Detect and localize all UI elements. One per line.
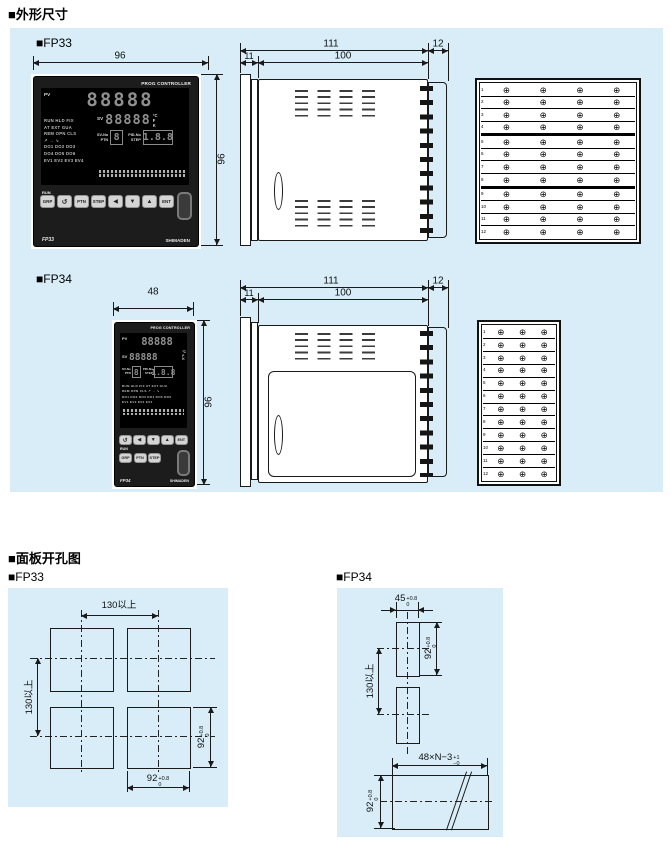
- terminal-screw-icon: ⊕: [490, 328, 512, 337]
- terminal-number: 7: [483, 407, 490, 412]
- terminal-number: 9: [483, 433, 490, 438]
- terminal-screw-icon: ⊕: [598, 190, 635, 199]
- terminal-screw-icon: ⊕: [512, 457, 534, 466]
- terminal-screw-icon: ⊕: [525, 111, 562, 120]
- terminal-row: 12⊕⊕⊕⊕: [481, 226, 635, 238]
- terminal-screw-icon: ⊕: [598, 98, 635, 107]
- tol-minus: 0: [374, 790, 380, 801]
- dim-line: [113, 308, 193, 309]
- terminal-screw-icon: ⊕: [562, 163, 599, 172]
- status-row: DO4 DO5 DO6: [44, 151, 96, 158]
- terminal-screw-icon: ⊕: [488, 203, 525, 212]
- ext-line: [448, 43, 449, 81]
- terminal-screw-icon: ⊕: [525, 190, 562, 199]
- status-row: RUN HLD FIX: [44, 118, 96, 125]
- dimensions-panel: ■FP33 96 96 PROG CONTROLLER PV 88888 RUN…: [10, 28, 663, 492]
- terminal-screw-icon: ⊕: [598, 123, 635, 132]
- status-row: AT EXT GUA: [44, 125, 96, 132]
- terminal-row: 4⊕⊕⊕: [483, 365, 555, 378]
- pv-label: PV: [122, 336, 127, 341]
- terminal-screw-icon: ⊕: [533, 328, 555, 337]
- cutout-square: [127, 628, 191, 692]
- terminal-screw-icon: ⊕: [598, 203, 635, 212]
- dim-value: 92: [196, 738, 207, 749]
- dim-line: [258, 299, 428, 300]
- fp33-h-pitch-dim: 130以上: [102, 597, 137, 611]
- maker-text: SHIMADEN: [170, 479, 189, 483]
- maker-text: SHIMADEN: [165, 238, 190, 243]
- fp34-cutout-width-dim: 45+0.80: [395, 588, 417, 608]
- tolerance-dim: 45+0.80: [395, 593, 417, 604]
- terminal-cover: [428, 82, 447, 238]
- terminal-screw-icon: ⊕: [562, 98, 599, 107]
- fp33-v-pitch-dim: 130以上: [21, 680, 35, 715]
- terminal-screw-icon: ⊕: [525, 215, 562, 224]
- terminal-screw-icon: ⊕: [490, 341, 512, 350]
- ext-line: [193, 707, 217, 708]
- ext-line: [487, 758, 488, 775]
- down-arrow-button-icon: ▼: [147, 435, 160, 445]
- fp33-model-text: FP33: [42, 237, 54, 243]
- ext-line: [396, 602, 397, 618]
- terminal-screw-icon: ⊕: [533, 457, 555, 466]
- flange-step: [251, 79, 258, 241]
- cutout-square: [50, 707, 114, 769]
- ptn-digit-display: 8: [132, 366, 141, 378]
- fp33-bezel: PROG CONTROLLER PV 88888 RUN HLD FIX AT …: [33, 76, 199, 247]
- fp34-front-height-dim: 96: [204, 396, 215, 407]
- case-slot: [274, 172, 283, 210]
- ext-line: [392, 758, 393, 775]
- fp33-front-height-dim: 96: [217, 153, 228, 164]
- terminal-screw-icon: ⊕: [512, 366, 534, 375]
- terminal-screw-icon: ⊕: [533, 405, 555, 414]
- up-arrow-button-icon: ▲: [142, 195, 157, 208]
- dim-line: [378, 648, 379, 714]
- dim-line: [428, 287, 448, 288]
- tolerance-dim: 92+0.80: [423, 637, 434, 659]
- terminal-screw-icon: ⊕: [533, 444, 555, 453]
- grp-button: GRP: [119, 453, 132, 463]
- terminal-screw-icon: ⊕: [525, 98, 562, 107]
- terminal-row: 9⊕⊕⊕: [483, 429, 555, 442]
- terminal-screw-icon: ⊕: [512, 405, 534, 414]
- unit-k: K: [182, 358, 186, 362]
- cutout-square: [50, 628, 114, 692]
- step-digit-display: 1.8.8: [154, 366, 173, 378]
- ext-line: [428, 280, 429, 326]
- loop-button-icon: ↺: [57, 195, 72, 208]
- terminal-screw-icon: ⊕: [598, 228, 635, 237]
- terminal-row: 11⊕⊕⊕⊕: [481, 214, 635, 227]
- sv-digits: 88888: [129, 353, 158, 363]
- cutout-rect: [396, 622, 420, 677]
- tool-port: [177, 450, 190, 476]
- terminal-number: 3: [483, 356, 490, 361]
- pv-digits: 88888: [55, 91, 185, 110]
- terminal-screw-icon: ⊕: [598, 86, 635, 95]
- ptn-label: PTN: [125, 371, 131, 375]
- terminal-screw-icon: ⊕: [490, 392, 512, 401]
- terminal-screw-icon: ⊕: [488, 163, 525, 172]
- terminal-row: 6⊕⊕⊕⊕: [481, 149, 635, 162]
- vent-slots-bottom: [295, 200, 375, 231]
- terminal-screw-icon: ⊕: [533, 366, 555, 375]
- terminal-screw-icon: ⊕: [512, 341, 534, 350]
- terminal-screw-icon: ⊕: [488, 123, 525, 132]
- terminal-screw-icon: ⊕: [598, 215, 635, 224]
- terminal-screw-icon: ⊕: [533, 418, 555, 427]
- status-column: RUN HLD FIX AT EXT GUA REM OPN CLS ↗ → ↘…: [122, 384, 186, 406]
- grp-button: GRP: [40, 195, 55, 208]
- terminal-number: 9: [481, 192, 488, 197]
- tolerance-dim: 92+0.80: [365, 790, 376, 812]
- dim-line: [258, 62, 428, 63]
- terminal-row: 5⊕⊕⊕⊕: [481, 136, 635, 149]
- terminal-screw-icon: ⊕: [598, 163, 635, 172]
- sv-row: SV 88888 °C F K: [97, 114, 187, 128]
- ext-line: [420, 622, 442, 623]
- terminal-number: 1: [481, 88, 488, 93]
- terminal-screw-icon: ⊕: [512, 444, 534, 453]
- terminal-row: 6⊕⊕⊕: [483, 391, 555, 404]
- terminal-screw-icon: ⊕: [562, 215, 599, 224]
- case-slot: [274, 415, 283, 455]
- ext-line: [240, 280, 241, 316]
- terminal-row: 10⊕⊕⊕⊕: [481, 201, 635, 214]
- fp34-model-text: FP34: [120, 478, 131, 483]
- status-row: DO1 DO2 DO3: [44, 144, 96, 151]
- status-row: ↗ → ↘: [44, 138, 96, 145]
- terminal-screw-icon: ⊕: [488, 150, 525, 159]
- terminal-screw-icon: ⊕: [512, 379, 534, 388]
- ext-line: [420, 675, 442, 676]
- terminal-number: 2: [483, 343, 490, 348]
- terminal-screw-icon: ⊕: [525, 228, 562, 237]
- tool-port: [177, 192, 192, 220]
- fp34-cutout-height-dim: 92+0.80: [418, 637, 438, 659]
- step-digit-display: 1.8.8: [143, 130, 173, 145]
- fp34-side-view: 111 12 11 100: [232, 275, 454, 490]
- terminal-row: 1⊕⊕⊕⊕: [481, 84, 635, 97]
- fp33-front-view: PROG CONTROLLER PV 88888 RUN HLD FIX AT …: [31, 74, 201, 249]
- terminal-number: 2: [481, 100, 488, 105]
- terminal-screw-icon: ⊕: [525, 163, 562, 172]
- terminal-screw-icon: ⊕: [490, 379, 512, 388]
- terminal-screw-icon: ⊕: [488, 176, 525, 185]
- ext-line: [195, 320, 210, 321]
- fp34-cutout-panel: 45+0.80 92+0.80 130以上 48×N−3+1−0 92+0.80: [337, 588, 503, 837]
- cutout-square: [127, 707, 191, 769]
- ext-line: [33, 56, 34, 70]
- terminal-screw-icon: ⊕: [512, 328, 534, 337]
- terminal-row: 8⊕⊕⊕⊕: [481, 174, 635, 189]
- fp33-side-depth-dim: 100: [335, 51, 352, 62]
- pv-label: PV: [44, 92, 50, 97]
- ext-line: [428, 43, 429, 79]
- brand-text: PROG CONTROLLER: [141, 81, 191, 86]
- terminal-row: 1⊕⊕⊕: [483, 326, 555, 339]
- terminal-screw-icon: ⊕: [598, 111, 635, 120]
- ptn-label: PTN: [101, 138, 109, 142]
- dim-value: 92: [147, 773, 158, 784]
- ext-line: [195, 484, 210, 485]
- terminal-screw-icon: ⊕: [562, 123, 599, 132]
- fp34-label: ■FP34: [36, 272, 72, 286]
- cutout-rect: [396, 687, 420, 744]
- dim-line: [392, 765, 487, 766]
- ptn-digit-display: 8: [110, 130, 123, 145]
- ext-line: [448, 280, 449, 328]
- terminal-screw-icon: ⊕: [525, 150, 562, 159]
- unit-column: °C F K: [182, 351, 186, 362]
- terminal-screw-icon: ⊕: [562, 86, 599, 95]
- center-line: [380, 801, 495, 802]
- terminal-screw-icon: ⊕: [490, 418, 512, 427]
- fp33-button-row: GRP ↺ PTN STEP ◀ ▼ ▲ ENT: [40, 195, 174, 208]
- ext-line: [193, 302, 194, 316]
- terminal-screw-icon: ⊕: [533, 392, 555, 401]
- fp33-cutout-width-dim: 92+0.80: [147, 768, 169, 788]
- terminal-screw-icon: ⊕: [512, 418, 534, 427]
- pidno-step-label: PID-NoSTEP: [128, 133, 141, 143]
- terminal-screw-icon: ⊕: [562, 176, 599, 185]
- terminal-screw-icon: ⊕: [533, 431, 555, 440]
- terminal-number: 6: [481, 152, 488, 157]
- fp33-cutout-label: ■FP33: [8, 570, 44, 584]
- fp34-v-pitch-dim: 130以上: [362, 664, 376, 699]
- terminal-number: 12: [481, 230, 488, 235]
- sv-digits: 88888: [105, 114, 151, 128]
- run-label: RUN: [120, 447, 128, 451]
- fp34-button-row-2: GRP PTN STEP: [119, 453, 161, 463]
- terminal-screw-icon: ⊕: [562, 190, 599, 199]
- terminal-row: 2⊕⊕⊕⊕: [481, 97, 635, 110]
- unit-column: °C F K: [153, 114, 158, 128]
- terminal-screw-icon: ⊕: [488, 215, 525, 224]
- ent-button: ENT: [175, 435, 188, 445]
- terminal-number: 8: [483, 420, 490, 425]
- dim-value: 92: [365, 802, 376, 813]
- fp33-display: PV 88888 RUN HLD FIX AT EXT GUA REM OPN …: [41, 88, 189, 185]
- terminal-screw-icon: ⊕: [488, 190, 525, 199]
- ptn-button: PTN: [134, 453, 147, 463]
- fp34-button-row-1: ↺ ◀ ▼ ▲ ENT: [119, 435, 190, 445]
- terminal-number: 12: [483, 472, 490, 477]
- terminal-number: 10: [483, 446, 490, 451]
- left-arrow-button-icon: ◀: [108, 195, 123, 208]
- ext-line: [374, 775, 395, 776]
- ent-button: ENT: [159, 195, 174, 208]
- bargraph: [99, 170, 185, 177]
- page: ■外形尺寸 ■FP33 96 96 PROG CONTROLLER PV 888…: [0, 0, 671, 849]
- fp34-front-width-dim: 48: [147, 287, 158, 298]
- terminal-screw-icon: ⊕: [512, 392, 534, 401]
- left-arrow-button-icon: ◀: [133, 435, 146, 445]
- terminal-number: 7: [481, 165, 488, 170]
- fp34-side-depth-dim: 100: [335, 288, 352, 299]
- terminal-number: 8: [481, 178, 488, 183]
- dim-line: [428, 50, 448, 51]
- terminal-number: 11: [481, 217, 488, 222]
- terminal-screw-icon: ⊕: [562, 138, 599, 147]
- fp34-display: PV 88888 SV 88888 °C F K SV-NoPTN 8 PID-…: [120, 333, 187, 428]
- sv-zone: SV 88888 °C F K SV-NoPTN 8 PID-NoSTEP: [97, 114, 187, 145]
- section-title-cutouts: ■面板开孔图: [8, 548, 81, 567]
- terminal-screw-icon: ⊕: [490, 470, 512, 479]
- ext-line: [189, 771, 190, 792]
- dim-line: [81, 615, 158, 616]
- mounting-flange: [240, 74, 251, 246]
- terminal-screw-icon: ⊕: [488, 111, 525, 120]
- terminal-screw-icon: ⊕: [562, 228, 599, 237]
- tol-minus: 0: [205, 726, 211, 737]
- sv-label: SV: [122, 354, 127, 359]
- terminal-screw-icon: ⊕: [490, 366, 512, 375]
- status-row: EV1 EV2 EV3 EV4: [44, 158, 96, 165]
- fp34-gang-height-dim: 92+0.80: [360, 790, 380, 812]
- terminal-screw-icon: ⊕: [490, 457, 512, 466]
- tol-minus: 0: [432, 637, 438, 648]
- unit-k: K: [153, 124, 158, 129]
- sv-label: SV: [97, 116, 103, 121]
- terminal-screw-icon: ⊕: [598, 138, 635, 147]
- terminal-number: 5: [483, 381, 490, 386]
- pidno-label: PID-No: [128, 133, 141, 137]
- terminal-number: 4: [483, 368, 490, 373]
- terminal-screw-icon: ⊕: [533, 354, 555, 363]
- tol-minus: 0: [406, 602, 417, 608]
- terminal-screw-icon: ⊕: [490, 354, 512, 363]
- ext-line: [258, 293, 259, 323]
- terminal-row: 9⊕⊕⊕⊕: [481, 189, 635, 202]
- dim-line: [240, 62, 258, 63]
- terminal-row: 10⊕⊕⊕: [483, 442, 555, 455]
- terminal-screw-icon: ⊕: [490, 431, 512, 440]
- case-panel: [268, 371, 416, 477]
- terminal-row: 12⊕⊕⊕: [483, 468, 555, 480]
- terminal-number: 10: [481, 205, 488, 210]
- terminal-number: 6: [483, 394, 490, 399]
- terminal-screw-icon: ⊕: [525, 176, 562, 185]
- dim-line: [33, 62, 208, 63]
- pv-digits: 88888: [128, 337, 186, 348]
- fp33-label: ■FP33: [36, 36, 72, 50]
- svno-ptn-label: SV-NoPTN: [122, 368, 131, 376]
- terminal-screw-icon: ⊕: [512, 354, 534, 363]
- flange-step: [251, 322, 258, 480]
- svno-label: SV-No: [97, 133, 108, 137]
- ext-line: [240, 43, 241, 73]
- fp34-cutout-label: ■FP34: [336, 570, 372, 584]
- vent-slots-top: [295, 333, 375, 363]
- terminal-row: 3⊕⊕⊕: [483, 352, 555, 365]
- fp33-side-total-dim: 111: [323, 39, 338, 50]
- brand-text: PROG CONTROLLER: [150, 326, 190, 330]
- status-row: REM OPN CLS: [44, 131, 96, 138]
- terminal-screw-icon: ⊕: [512, 431, 534, 440]
- status-column: RUN HLD FIX AT EXT GUA REM OPN CLS ↗ → ↘…: [44, 118, 96, 164]
- terminal-row: 7⊕⊕⊕⊕: [481, 161, 635, 174]
- ptn-button: PTN: [74, 195, 89, 208]
- fp33-side-view: 111 12 11 100: [232, 38, 454, 250]
- fp33-terminal-block: 1⊕⊕⊕⊕2⊕⊕⊕⊕3⊕⊕⊕⊕4⊕⊕⊕⊕5⊕⊕⊕⊕6⊕⊕⊕⊕7⊕⊕⊕⊕8⊕⊕⊕⊕…: [479, 82, 637, 240]
- fp33-cutout-panel: 130以上 130以上 92+0.80 92+0.80: [8, 588, 228, 807]
- terminal-screw-icon: ⊕: [525, 123, 562, 132]
- terminal-number: 5: [481, 140, 488, 145]
- terminal-screw-icon: ⊕: [598, 176, 635, 185]
- ext-line: [418, 602, 419, 618]
- terminal-screw-icon: ⊕: [488, 138, 525, 147]
- fp33-rear-view: 1⊕⊕⊕⊕2⊕⊕⊕⊕3⊕⊕⊕⊕4⊕⊕⊕⊕5⊕⊕⊕⊕6⊕⊕⊕⊕7⊕⊕⊕⊕8⊕⊕⊕⊕…: [475, 78, 641, 244]
- bargraph: [123, 409, 184, 415]
- terminal-row: 3⊕⊕⊕⊕: [481, 109, 635, 122]
- gang-cutout-rect: [392, 775, 489, 830]
- terminal-number: 3: [481, 113, 488, 118]
- terminal-screw-icon: ⊕: [533, 470, 555, 479]
- terminal-screw-icon: ⊕: [533, 341, 555, 350]
- tolerance-dim: 48×N−3+1−0: [418, 752, 459, 763]
- terminal-screw-icon: ⊕: [488, 228, 525, 237]
- terminal-row: 8⊕⊕⊕: [483, 416, 555, 429]
- ext-line: [258, 56, 259, 78]
- terminal-screw-icon: ⊕: [488, 86, 525, 95]
- dim-value: 48×N−3: [418, 752, 452, 763]
- ext-line: [200, 245, 223, 246]
- terminal-screw-icon: ⊕: [525, 86, 562, 95]
- ext-line: [374, 828, 395, 829]
- up-arrow-button-icon: ▲: [161, 435, 174, 445]
- terminal-screw-icon: ⊕: [533, 379, 555, 388]
- loop-button-icon: ↺: [119, 435, 132, 445]
- terminal-row: 4⊕⊕⊕⊕: [481, 122, 635, 137]
- fp34-terminal-block: 1⊕⊕⊕2⊕⊕⊕3⊕⊕⊕4⊕⊕⊕5⊕⊕⊕6⊕⊕⊕7⊕⊕⊕8⊕⊕⊕9⊕⊕⊕10⊕⊕…: [481, 324, 557, 482]
- fp34-front-view: PROG CONTROLLER PV 88888 SV 88888 °C F K…: [112, 320, 197, 489]
- terminal-row: 7⊕⊕⊕: [483, 404, 555, 417]
- terminal-number: 1: [483, 330, 490, 335]
- tolerance-dim: 92+0.80: [147, 773, 169, 784]
- section-title-dimensions: ■外形尺寸: [8, 4, 68, 23]
- dim-line: [380, 775, 381, 828]
- fp34-bezel: PROG CONTROLLER PV 88888 SV 88888 °C F K…: [114, 322, 195, 487]
- tolerance-dim: 92+0.80: [196, 726, 207, 748]
- down-arrow-button-icon: ▼: [125, 195, 140, 208]
- dim-line: [381, 610, 433, 611]
- step-button: STEP: [148, 453, 161, 463]
- terminal-screw-icon: ⊕: [598, 150, 635, 159]
- terminal-screw-icon: ⊕: [488, 98, 525, 107]
- terminal-screw-icon: ⊕: [525, 138, 562, 147]
- terminal-screw-icon: ⊕: [562, 203, 599, 212]
- ext-line: [127, 771, 128, 792]
- terminal-screw-icon: ⊕: [562, 150, 599, 159]
- terminal-row: 5⊕⊕⊕: [483, 378, 555, 391]
- vent-slots-top: [295, 90, 375, 121]
- fp33-button-zone: RUN GRP ↺ PTN STEP ◀ ▼ ▲ ENT: [40, 190, 192, 226]
- status-row: EV1 EV2 EV3 EV4: [122, 400, 186, 405]
- dim-line: [37, 658, 38, 736]
- ext-line: [200, 74, 223, 75]
- ptn-step-row: SV-NoPTN 8 PID-NoSTEP 1.8.8: [122, 366, 173, 378]
- fp34-button-zone: ↺ ◀ ▼ ▲ ENT RUN GRP PTN STEP: [119, 435, 190, 474]
- mounting-flange: [240, 317, 251, 487]
- terminal-number: 11: [483, 459, 490, 464]
- terminal-number: 4: [481, 125, 488, 130]
- svno-ptn-label: SV-NoPTN: [97, 133, 108, 143]
- terminal-screw-icon: ⊕: [562, 111, 599, 120]
- dim-line: [240, 299, 258, 300]
- terminal-screw-icon: ⊕: [512, 470, 534, 479]
